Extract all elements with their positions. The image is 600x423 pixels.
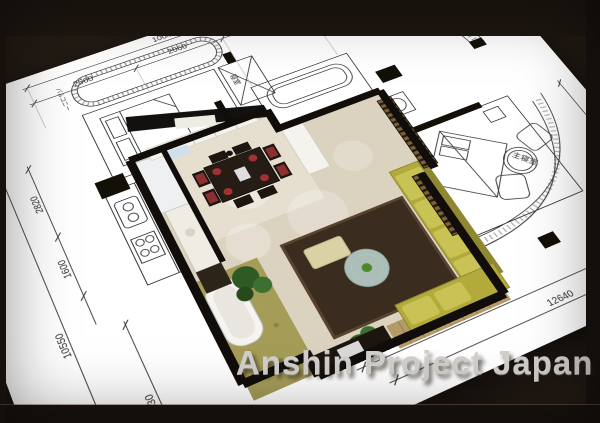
watermark-text: Anshin Project Japan bbox=[236, 344, 593, 382]
frame-inner-edge bbox=[0, 404, 600, 405]
dim-left-2: 1600 bbox=[55, 258, 74, 281]
room-label-bedroom: 寝室 bbox=[228, 73, 243, 86]
dim-top-inner-2: 2060 bbox=[166, 42, 189, 55]
balcony-top-outline bbox=[66, 32, 228, 111]
rendered-floorplan-image: 10040 2500 14484 2560 2060 2970 1920 282… bbox=[0, 0, 600, 423]
dim-left-1: 2820 bbox=[27, 194, 45, 215]
frame-left bbox=[0, 0, 6, 423]
dim-top-inner-1: 2560 bbox=[71, 74, 95, 88]
room-label-master-bedroom: 主寝室 bbox=[511, 150, 540, 167]
room-label-balcony-top: バルコニー bbox=[54, 87, 72, 112]
dim-bottom-outer: 12640 bbox=[544, 287, 576, 308]
frame-top bbox=[0, 0, 600, 36]
frame-bottom bbox=[0, 405, 600, 423]
